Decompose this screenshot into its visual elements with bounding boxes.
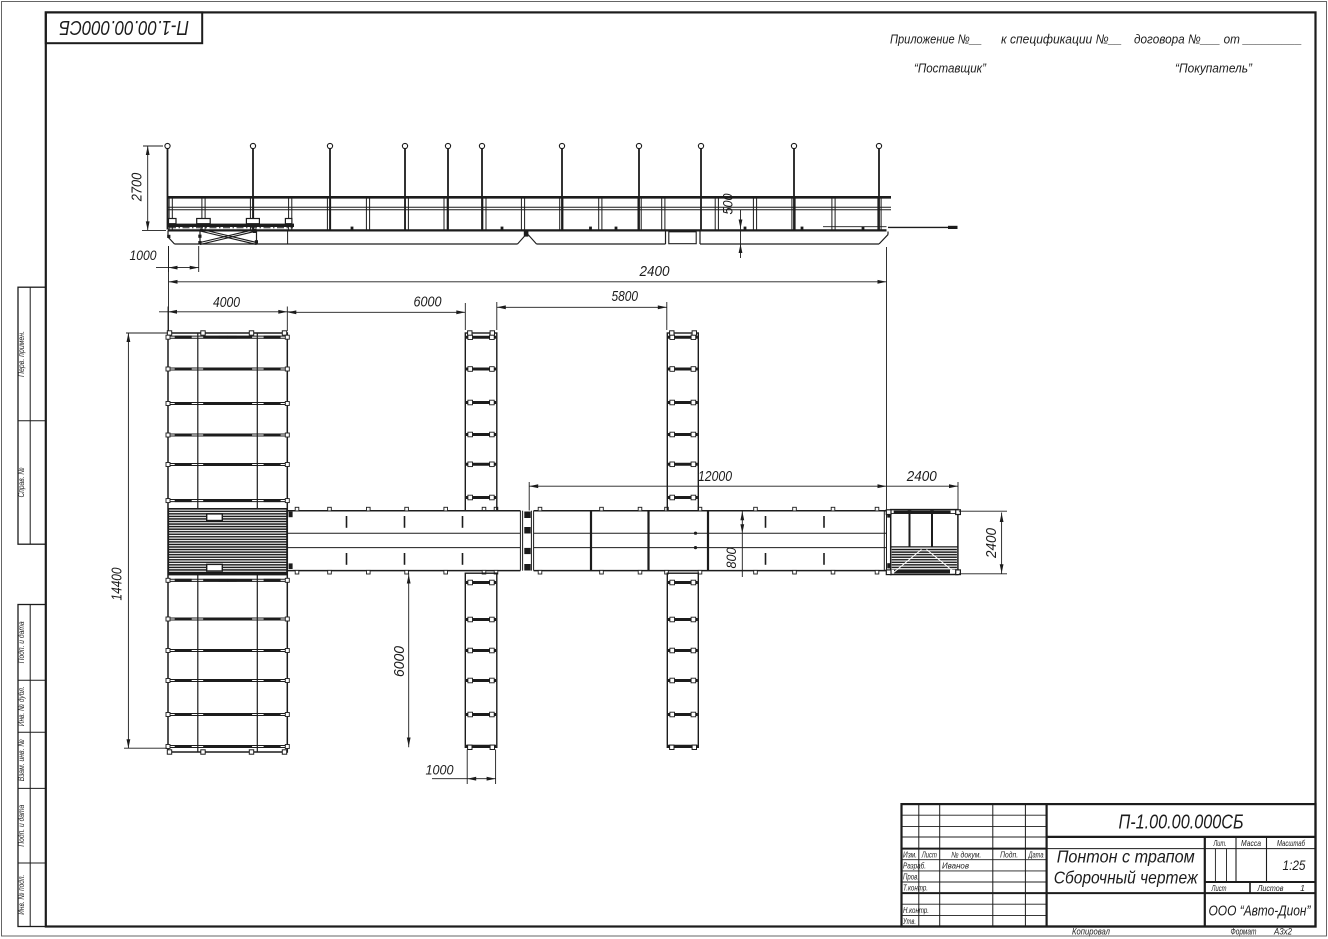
- svg-text:Н.контр.: Н.контр.: [903, 906, 929, 915]
- svg-text:Копировал: Копировал: [1072, 927, 1111, 938]
- svg-text:Лист: Лист: [1211, 883, 1227, 893]
- svg-text:12000: 12000: [698, 469, 732, 485]
- svg-text:500: 500: [720, 193, 736, 214]
- svg-text:Сборочный чертеж: Сборочный чертеж: [1054, 868, 1199, 888]
- svg-text:Взам. инв. №: Взам. инв. №: [16, 739, 26, 781]
- svg-text:ООО “Авто-Дион”: ООО “Авто-Дион”: [1209, 903, 1312, 920]
- svg-text:П-1.00.00.000СБ: П-1.00.00.000СБ: [1119, 811, 1244, 834]
- svg-text:2400: 2400: [639, 264, 670, 280]
- svg-text:“Покупатель”: “Покупатель”: [1175, 61, 1253, 76]
- svg-text:Лит.: Лит.: [1213, 838, 1227, 848]
- svg-text:1000: 1000: [130, 247, 157, 263]
- svg-text:договора №___ от _________: договора №___ от _________: [1134, 32, 1302, 47]
- svg-text:6000: 6000: [392, 646, 408, 677]
- svg-text:№ докум.: № докум.: [951, 850, 981, 859]
- svg-text:Понтон с трапом: Понтон с трапом: [1057, 847, 1195, 867]
- svg-text:Дата: Дата: [1028, 850, 1044, 859]
- svg-text:6000: 6000: [414, 295, 442, 311]
- svg-text:Масштаб: Масштаб: [1277, 838, 1306, 848]
- svg-text:Разраб.: Разраб.: [903, 861, 926, 870]
- svg-text:2400: 2400: [906, 469, 937, 485]
- svg-text:П-1.00.00.000СБ: П-1.00.00.000СБ: [59, 16, 189, 38]
- svg-text:Перв. примен.: Перв. примен.: [16, 331, 26, 377]
- svg-text:Приложение №__: Приложение №__: [890, 32, 982, 47]
- svg-text:1: 1: [1300, 883, 1305, 893]
- svg-text:Т.контр.: Т.контр.: [903, 884, 928, 893]
- svg-text:2700: 2700: [130, 173, 146, 202]
- svg-text:1:25: 1:25: [1283, 858, 1306, 873]
- svg-text:800: 800: [723, 547, 739, 568]
- svg-text:“Поставщик”: “Поставщик”: [914, 61, 987, 76]
- svg-text:к спецификации №__: к спецификации №__: [1001, 32, 1122, 47]
- svg-text:4000: 4000: [213, 295, 240, 311]
- svg-text:Подп. и дата: Подп. и дата: [16, 621, 26, 663]
- svg-text:Изм.: Изм.: [903, 850, 917, 859]
- svg-text:Подп. и дата: Подп. и дата: [16, 805, 26, 847]
- svg-text:Подп.: Подп.: [1000, 850, 1018, 859]
- svg-text:Масса: Масса: [1241, 838, 1261, 848]
- svg-text:1000: 1000: [426, 762, 454, 778]
- svg-text:Формат: Формат: [1231, 927, 1257, 938]
- svg-text:А3х2: А3х2: [1273, 927, 1292, 938]
- svg-text:Инв. № подл.: Инв. № подл.: [16, 875, 26, 915]
- svg-text:Пров.: Пров.: [903, 872, 919, 881]
- svg-text:Утв.: Утв.: [902, 917, 916, 926]
- svg-text:5800: 5800: [612, 289, 639, 305]
- svg-text:Листов: Листов: [1257, 883, 1284, 893]
- svg-text:2400: 2400: [984, 528, 1000, 559]
- svg-text:Инв. № дубл.: Инв. № дубл.: [16, 686, 26, 726]
- svg-text:Справ. №: Справ. №: [16, 468, 26, 498]
- svg-text:Иванов: Иванов: [942, 861, 970, 870]
- svg-text:14400: 14400: [110, 568, 126, 601]
- svg-text:Лист: Лист: [921, 850, 937, 859]
